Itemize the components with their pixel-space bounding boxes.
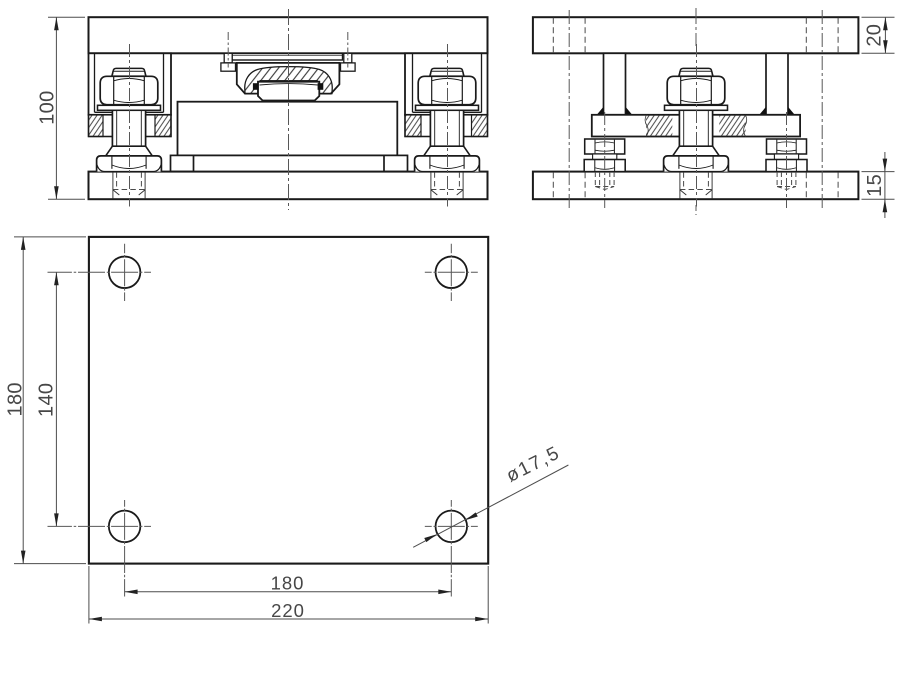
- svg-text:20: 20: [863, 24, 885, 47]
- svg-text:140: 140: [36, 383, 58, 417]
- svg-text:180: 180: [271, 572, 305, 593]
- svg-text:220: 220: [271, 600, 305, 621]
- svg-text:180: 180: [4, 382, 26, 416]
- svg-text:15: 15: [864, 174, 886, 197]
- svg-text:100: 100: [36, 90, 58, 124]
